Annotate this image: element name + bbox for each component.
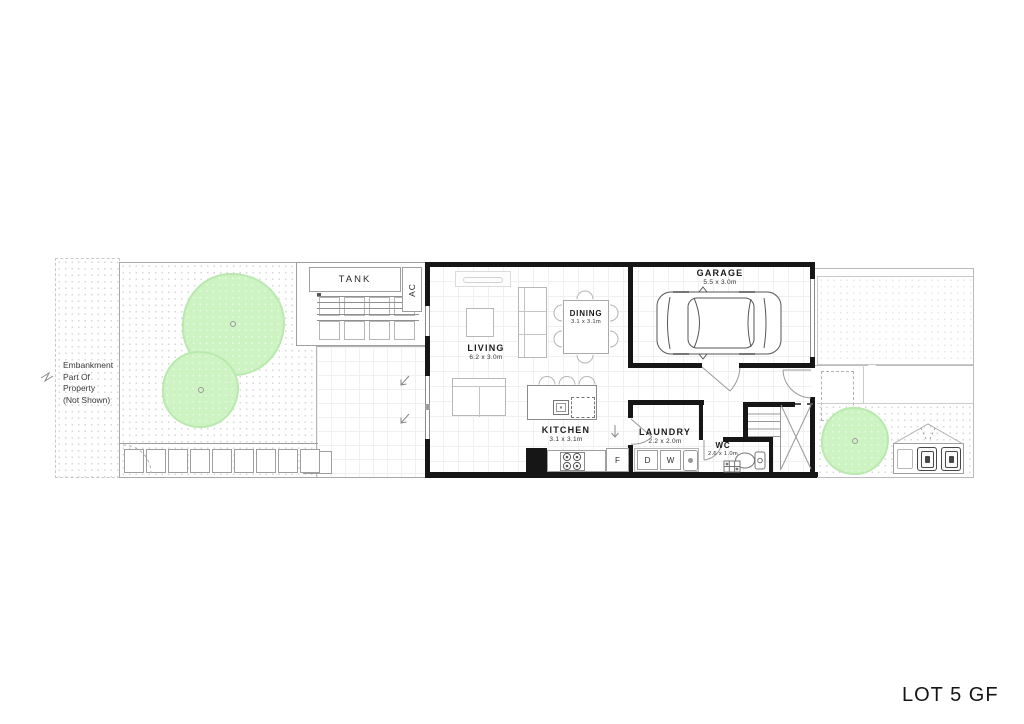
embankment-note-line: Embankment [63,360,121,372]
break-symbol [41,373,53,381]
window-living-2 [425,376,430,404]
bin-handle [925,456,930,463]
room-name: WC [701,441,745,450]
fridge-label: F [615,456,620,465]
room-name: GARAGE [676,268,764,278]
tree-small [162,351,239,428]
sofa-back-line [524,288,525,357]
paver [124,449,144,473]
tree-front [821,407,889,475]
embankment-note-line: Property [63,383,121,395]
wall-laundry-top [628,400,704,405]
floor-plan-canvas: Embankment Part Of Property (Not Shown) … [0,0,1024,724]
window-kitchen [425,410,430,439]
laundry-label: LAUNDRY 2.2 x 2.0m [629,427,701,445]
kitchen-wall-stub [526,448,547,472]
tank-label: TANK [339,274,372,285]
paver [190,449,210,473]
path-edge-line [863,365,864,403]
stair-divider [780,402,781,470]
coffee-table [466,308,494,337]
wall-laundry-west [628,400,633,418]
cooktop [560,452,585,471]
boundary-line-top [815,268,974,269]
wall-garage-divider [628,262,633,368]
room-name: LIVING [450,343,522,353]
wall-garage-south [628,363,702,368]
boundary-line-right [973,268,974,478]
path-line [815,365,868,366]
sofa-cushion-line [479,386,480,417]
sofa-long [518,287,547,358]
wheelie-bin [917,447,937,471]
wall-stairs-west [743,402,748,440]
driveway-area [817,276,974,365]
paver [234,449,254,473]
house-floor [428,266,812,474]
bin-lid [921,451,934,468]
washer: W [660,450,681,470]
garage-label: GARAGE 5.5 x 3.0m [676,268,764,286]
room-dims: 2.6 x 1.0m [701,451,745,457]
paver-path [119,443,318,478]
wheelie-bin [941,447,961,471]
room-dims: 3.1 x 3.1m [564,319,608,325]
island-sink [553,400,569,415]
ac-label: AC [407,283,417,297]
window-garage [810,279,815,357]
tv-screen [463,277,503,283]
dryer: D [637,450,658,470]
dryer-label: D [645,456,651,465]
fridge: F [606,448,629,472]
embankment-note-line: Part Of [63,372,121,384]
wall-east [810,397,815,478]
room-dims: 5.5 x 3.0m [676,279,764,286]
island-sink-basin [556,403,566,412]
tank-label-box: TANK [309,267,401,292]
bin-store-shelf [897,449,913,469]
paver [278,449,298,473]
kitchen-label: KITCHEN 3.1 x 3.1m [527,425,605,443]
path-line [876,365,974,366]
wall-west [425,439,430,478]
embankment-note-line: (Not Shown) [63,395,121,407]
wall-west [425,262,430,306]
wall-wc-east [769,437,773,472]
embankment-note: Embankment Part Of Property (Not Shown) [63,360,121,406]
wall-stairs-top-dashed [795,403,813,405]
paver [300,449,320,473]
wc-label: WC 2.6 x 1.0m [701,441,745,457]
living-label: LIVING 6.2 x 3.0m [450,343,522,361]
bin-lid [945,451,958,468]
dishwasher-space [571,397,595,418]
room-dims: 6.2 x 3.0m [450,354,522,361]
dining-label: DINING 3.1 x 3.1m [564,309,608,325]
wall-west [425,336,430,376]
room-name: LAUNDRY [629,427,701,437]
room-name: KITCHEN [527,425,605,435]
patio-area [316,346,426,477]
wall-garage-south [739,363,815,368]
wall-south [425,472,818,478]
room-dims: 3.1 x 3.1m [527,436,605,443]
wall-north [425,262,815,267]
ac-unit-box: AC [402,267,422,312]
room-dims: 2.2 x 2.0m [629,438,701,445]
wall-stairs-top [743,402,795,407]
room-name: DINING [564,309,608,318]
paver [256,449,276,473]
tv-unit [455,271,511,287]
stair-treads [748,406,780,438]
plan-title: LOT 5 GF [902,684,1022,707]
window-living-1 [425,306,430,336]
washer-label: W [667,456,675,465]
paver [168,449,188,473]
wall-east [810,262,815,279]
sofa-short [452,378,506,416]
bin-handle [949,456,954,463]
paver [212,449,232,473]
paver [146,449,166,473]
